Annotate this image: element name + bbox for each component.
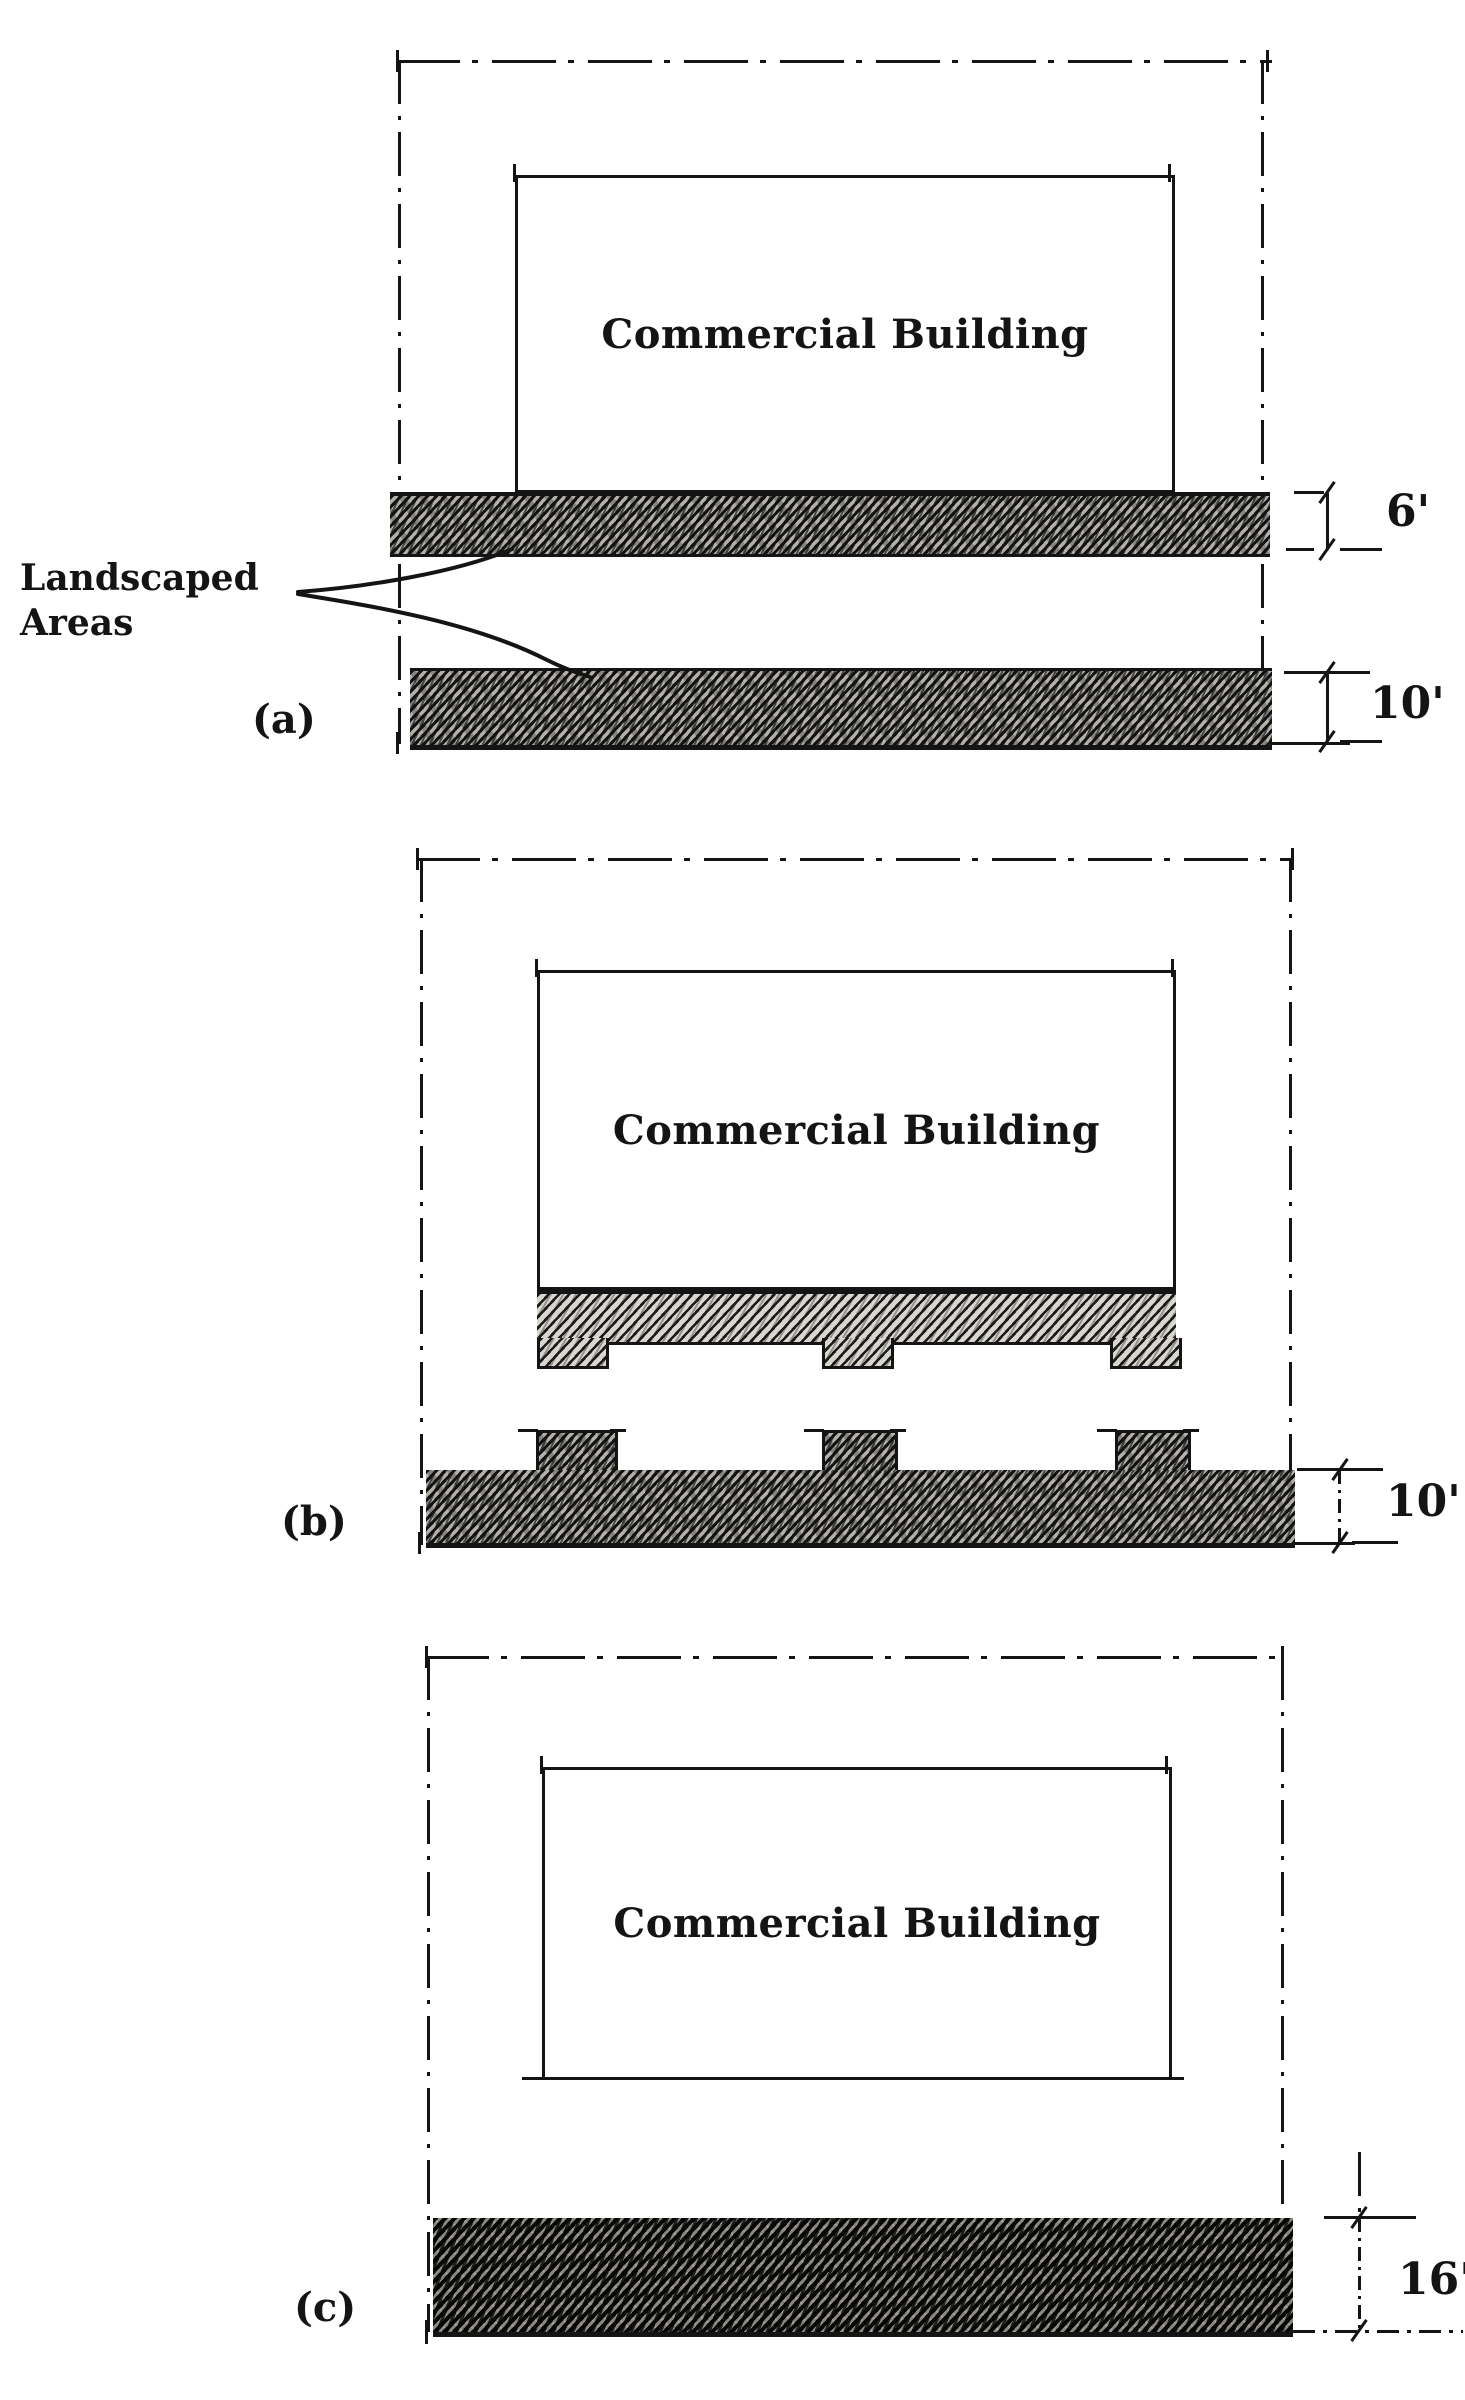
- lot-line-tick-b: [418, 1532, 421, 1554]
- building-b: Commercial Building: [537, 970, 1176, 1290]
- dim-16ft-label: 16': [1398, 2258, 1465, 2302]
- building-c-label: Commercial Building: [613, 1900, 1100, 1947]
- lot-boundary-right-b: [1289, 858, 1292, 1545]
- lot-boundary-left-a: [398, 60, 401, 744]
- dim-10ft-a-extension: [1284, 671, 1370, 674]
- dim-10ft-b-extension: [1352, 1541, 1398, 1544]
- lot-line-tick-c: [425, 2320, 428, 2344]
- dim-6ft-label: 6': [1386, 490, 1430, 534]
- planting-tab-down: [1110, 1338, 1182, 1369]
- lot-boundary-right-a: [1261, 60, 1264, 744]
- dim-10ft-a-line: [1326, 673, 1329, 742]
- planting-tab-down: [537, 1338, 609, 1369]
- lot-boundary-left-c: [427, 1656, 430, 2332]
- lot-line-bottom-ext-b: [1295, 1542, 1355, 1545]
- lot-boundary-top-b: [416, 858, 1294, 861]
- building-corner-tick: [513, 164, 516, 182]
- landscaped-areas-note: Landscaped Areas: [20, 556, 270, 646]
- panel-tag-b: (b): [281, 1502, 347, 1542]
- building-corner-tick: [1171, 959, 1174, 977]
- dim-6ft-extension: [1286, 548, 1314, 551]
- boundary-corner-tick: [1266, 50, 1269, 72]
- tab-tick: [804, 1429, 824, 1432]
- building-corner-tick: [522, 2077, 546, 2080]
- dim-6ft-extension: [1340, 548, 1382, 551]
- lot-line-bottom-ext-a: [1270, 742, 1350, 745]
- dim-10ft-b-extension: [1297, 1468, 1383, 1471]
- boundary-corner-tick: [416, 848, 419, 870]
- tab-tick: [518, 1429, 538, 1432]
- site-plan-figure: Commercial Building 6' 10' Landscaped Ar…: [0, 0, 1465, 2400]
- tab-tick: [890, 1429, 906, 1432]
- lot-boundary-right-c: [1281, 1656, 1284, 2216]
- dim-10ft-a-extension: [1340, 740, 1382, 743]
- dim-16ft-extension: [1324, 2216, 1416, 2219]
- dim-10ft-b-label: 10': [1386, 1480, 1461, 1524]
- tab-tick: [1183, 1429, 1199, 1432]
- tab-tick: [1097, 1429, 1117, 1432]
- lot-line-tick-a: [396, 732, 399, 754]
- panel-tag-c: (c): [294, 2288, 356, 2328]
- landscape-strip-a-street: [410, 668, 1272, 750]
- building-corner-tick: [540, 1756, 543, 1774]
- building-corner-tick: [1160, 2077, 1184, 2080]
- lot-line-bottom-ext-c: [1293, 2330, 1463, 2333]
- dim-6ft-extension: [1294, 491, 1324, 494]
- landscaped-areas-note-line2: Areas: [20, 601, 270, 646]
- landscaped-areas-note-line1: Landscaped: [20, 556, 270, 601]
- dim-6ft-line: [1326, 493, 1329, 550]
- leader-line-lower: [298, 594, 590, 677]
- lot-boundary-top-c: [425, 1656, 1283, 1659]
- building-a: Commercial Building: [515, 175, 1175, 493]
- planting-tab-down: [822, 1338, 894, 1369]
- building-corner-tick: [535, 959, 538, 977]
- landscape-strip-a-front: [390, 492, 1270, 557]
- building-corner-tick: [1168, 164, 1171, 182]
- dim-10ft-a-label: 10': [1370, 682, 1445, 726]
- building-b-label: Commercial Building: [613, 1107, 1100, 1154]
- landscape-strip-b-street: [426, 1470, 1295, 1548]
- lot-boundary-left-b: [420, 858, 423, 1545]
- landscape-strip-c-street: [433, 2218, 1293, 2337]
- building-c: Commercial Building: [542, 1767, 1172, 2080]
- planting-band-building-b: [537, 1290, 1176, 1345]
- building-corner-tick: [1165, 1756, 1168, 1774]
- dim-10ft-b-line: [1338, 1470, 1341, 1543]
- panel-tag-a: (a): [252, 700, 316, 740]
- building-a-label: Commercial Building: [601, 311, 1088, 358]
- dim-16ft-line: [1358, 2218, 1361, 2332]
- tab-tick: [610, 1429, 626, 1432]
- lot-boundary-top-a: [396, 60, 1272, 63]
- dim-16ft-upper-extension: [1358, 2152, 1361, 2218]
